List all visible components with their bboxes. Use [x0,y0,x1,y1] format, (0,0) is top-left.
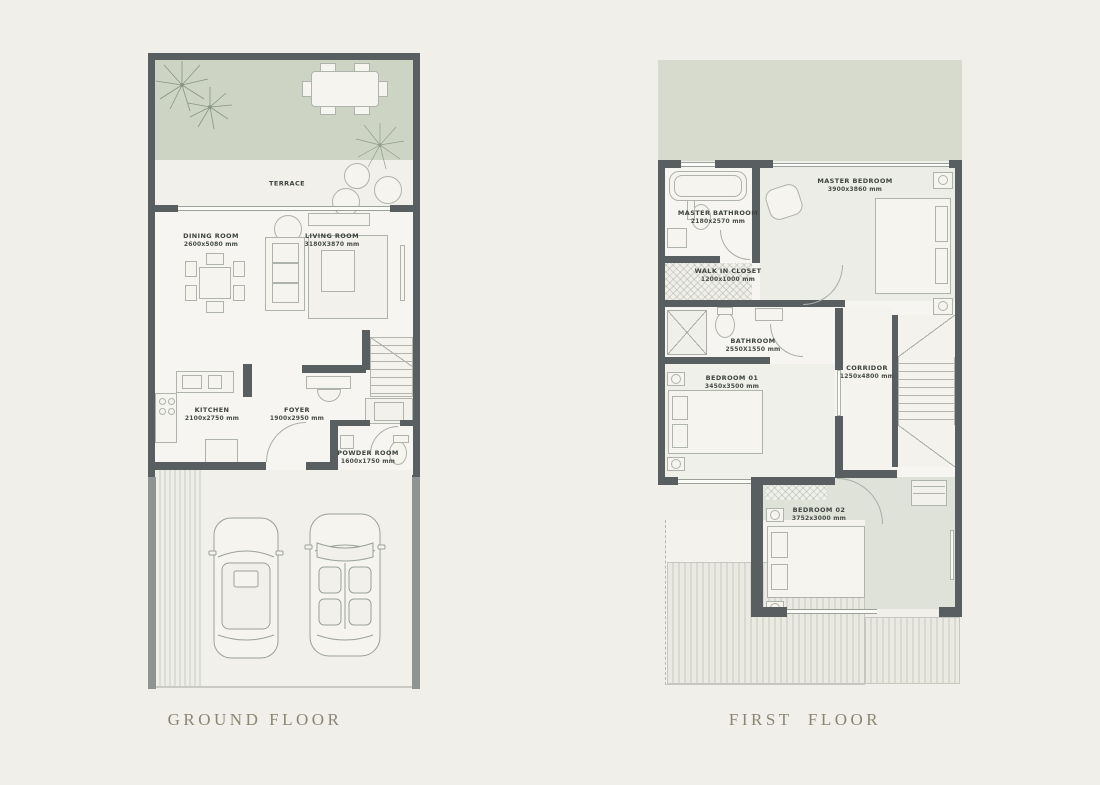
toilet-tank [393,435,409,443]
wall [658,256,720,263]
room-label-master-bedroom: MASTER BEDROOM 3900x3860 mm [817,177,892,195]
wall [306,462,330,470]
bed-pillow [771,532,788,558]
palm-tree-icon [152,55,242,145]
outdoor-chair [378,81,388,97]
room-dims: 2550X1550 mm [725,346,780,355]
first-floor-title: FIRST FLOOR [655,710,955,730]
room-label-kitchen: KITCHEN 2100x2750 mm [185,406,239,424]
sofa-cushion [272,263,299,283]
outdoor-chair [320,63,336,72]
sink [340,435,354,449]
closet-shelf-line [913,493,945,494]
room-dims: 3900x3860 mm [817,186,892,195]
lamp [938,301,948,311]
pergola-slats [865,617,960,684]
room-name: TERRACE [269,179,305,187]
room-dims: 2180x2570 mm [678,218,758,227]
room-name: BEDROOM 02 [793,506,846,514]
wall [658,477,678,485]
room-name: LIVING ROOM [305,232,359,240]
dining-chair [233,261,245,277]
room-dims: 3180X3870 mm [304,241,359,250]
room-dims: 1200x1000 mm [695,276,762,285]
room-name: MASTER BATHROOM [678,209,758,217]
outdoor-table [311,71,379,107]
room-dims: 1600x1750 mm [337,458,399,467]
room-name: KITCHEN [195,406,230,414]
outdoor-chair [354,63,370,72]
room-label-foyer: FOYER 1900x2950 mm [270,406,324,424]
room-name: CORRIDOR [846,364,888,372]
window [773,163,949,167]
closet-shelf-line [913,486,945,487]
dining-table [199,267,231,299]
room-label-bedroom-02: BEDROOM 02 3752x3000 mm [792,506,846,524]
wall [413,53,420,477]
lamp [938,175,948,185]
balcony-door-leaf [950,530,954,580]
washer [374,402,404,421]
garage-wall [412,477,420,689]
floorplan-sheet: TERRACE DINING ROOM 2600x5080 mm LIVING … [0,0,1100,785]
room-name: BEDROOM 01 [706,374,759,382]
stove-burner [159,408,166,415]
wall [763,477,835,485]
wall [390,205,420,212]
car-suv-icon [208,513,284,663]
room-label-powder-room: POWDER ROOM 1600x1750 mm [337,449,399,467]
room-label-dining-room: DINING ROOM 2600x5080 mm [183,232,239,250]
terrace-below-area [658,60,962,161]
bed-pillow [935,206,948,242]
wall [362,330,370,370]
outdoor-chair [302,81,312,97]
wall [751,477,763,617]
bathtub-inner [674,175,742,197]
room-label-bedroom-01: BEDROOM 01 3450x3500 mm [705,374,759,392]
kitchen-island [205,439,238,463]
lounge-pouf [344,163,370,189]
wall [243,364,252,397]
sink [755,308,783,321]
dining-chair [185,261,197,277]
wall [835,416,843,477]
sofa-cushion [272,243,299,263]
dining-chair [206,253,224,265]
driveway-edge [156,686,412,688]
bed-pillow [672,424,688,448]
wall [658,357,770,364]
outdoor-chair [320,106,336,115]
toilet-tank [717,307,733,315]
garage-wall [148,477,156,689]
kitchen-sink [208,375,222,389]
wall [658,160,665,485]
window [178,206,390,211]
ground-floor-plan: TERRACE DINING ROOM 2600x5080 mm LIVING … [148,45,420,690]
lounge-pouf [374,176,402,204]
lamp [671,459,681,469]
dining-chair [233,285,245,301]
room-dims: 3752x3000 mm [792,515,846,524]
wall [148,205,178,212]
lounge-pouf [332,188,360,216]
bed-pillow [935,248,948,284]
bed-pillow [771,564,788,590]
room-label-terrace: TERRACE [269,179,305,188]
stair-cut-line [370,337,413,367]
room-label-bathroom: BATHROOM 2550X1550 mm [725,337,780,355]
ground-floor-title: GROUND FLOOR [105,710,405,730]
shower [667,310,707,355]
stair-cut-line [898,425,955,467]
wall [955,160,962,617]
toilet [715,312,735,338]
coffee-table [321,250,355,292]
room-dims: 3450x3500 mm [705,383,759,392]
wall [148,53,155,477]
car-convertible-icon [303,509,387,661]
room-label-walk-in-closet: WALK IN CLOSET 1200x1000 mm [695,267,762,285]
room-label-living-room: LIVING ROOM 3180X3870 mm [304,232,359,250]
room-label-corridor: CORRIDOR 1250x4800 mm [840,364,894,382]
corridor-floor [843,307,892,470]
bed-pillow [672,396,688,420]
kitchen-sink [182,375,202,389]
wall [148,462,266,470]
stove-burner [168,408,175,415]
room-name: WALK IN CLOSET [695,267,762,275]
room-dims: 2600x5080 mm [183,241,239,250]
sofa-cushion [272,283,299,303]
wall [665,160,681,168]
window [787,609,877,614]
driveway-hatch [156,470,202,687]
room-name: DINING ROOM [183,232,239,240]
wardrobe [765,485,827,500]
wall [302,365,366,373]
window [681,162,715,167]
wall [939,607,962,617]
room-label-master-bathroom: MASTER BATHROOM 2180x2570 mm [678,209,758,227]
lamp [770,510,780,520]
console-table [308,213,370,226]
stove-burner [168,398,175,405]
wall [152,53,416,60]
dining-chair [185,285,197,301]
room-dims: 1250x4800 mm [840,373,894,382]
tv-unit [400,245,405,301]
wall [751,607,787,617]
dining-chair [206,301,224,313]
outdoor-chair [354,106,370,115]
foyer-console [306,376,351,389]
wall [715,160,773,168]
room-dims: 1900x2950 mm [270,415,324,424]
room-name: MASTER BEDROOM [817,177,892,185]
sink [667,228,687,248]
room-name: FOYER [284,406,310,414]
room-name: BATHROOM [730,337,775,345]
room-dims: 2100x2750 mm [185,415,239,424]
stove-burner [159,398,166,405]
window [678,479,751,484]
wall [658,300,760,307]
wall [330,420,370,426]
stair-cut-line [898,315,955,357]
wall [400,420,413,426]
wall [835,308,843,370]
wall [835,470,897,478]
first-floor-plan: MASTER BATHROOM 2180x2570 mm MASTER BEDR… [655,60,965,690]
lamp [671,374,681,384]
room-name: POWDER ROOM [337,449,399,457]
